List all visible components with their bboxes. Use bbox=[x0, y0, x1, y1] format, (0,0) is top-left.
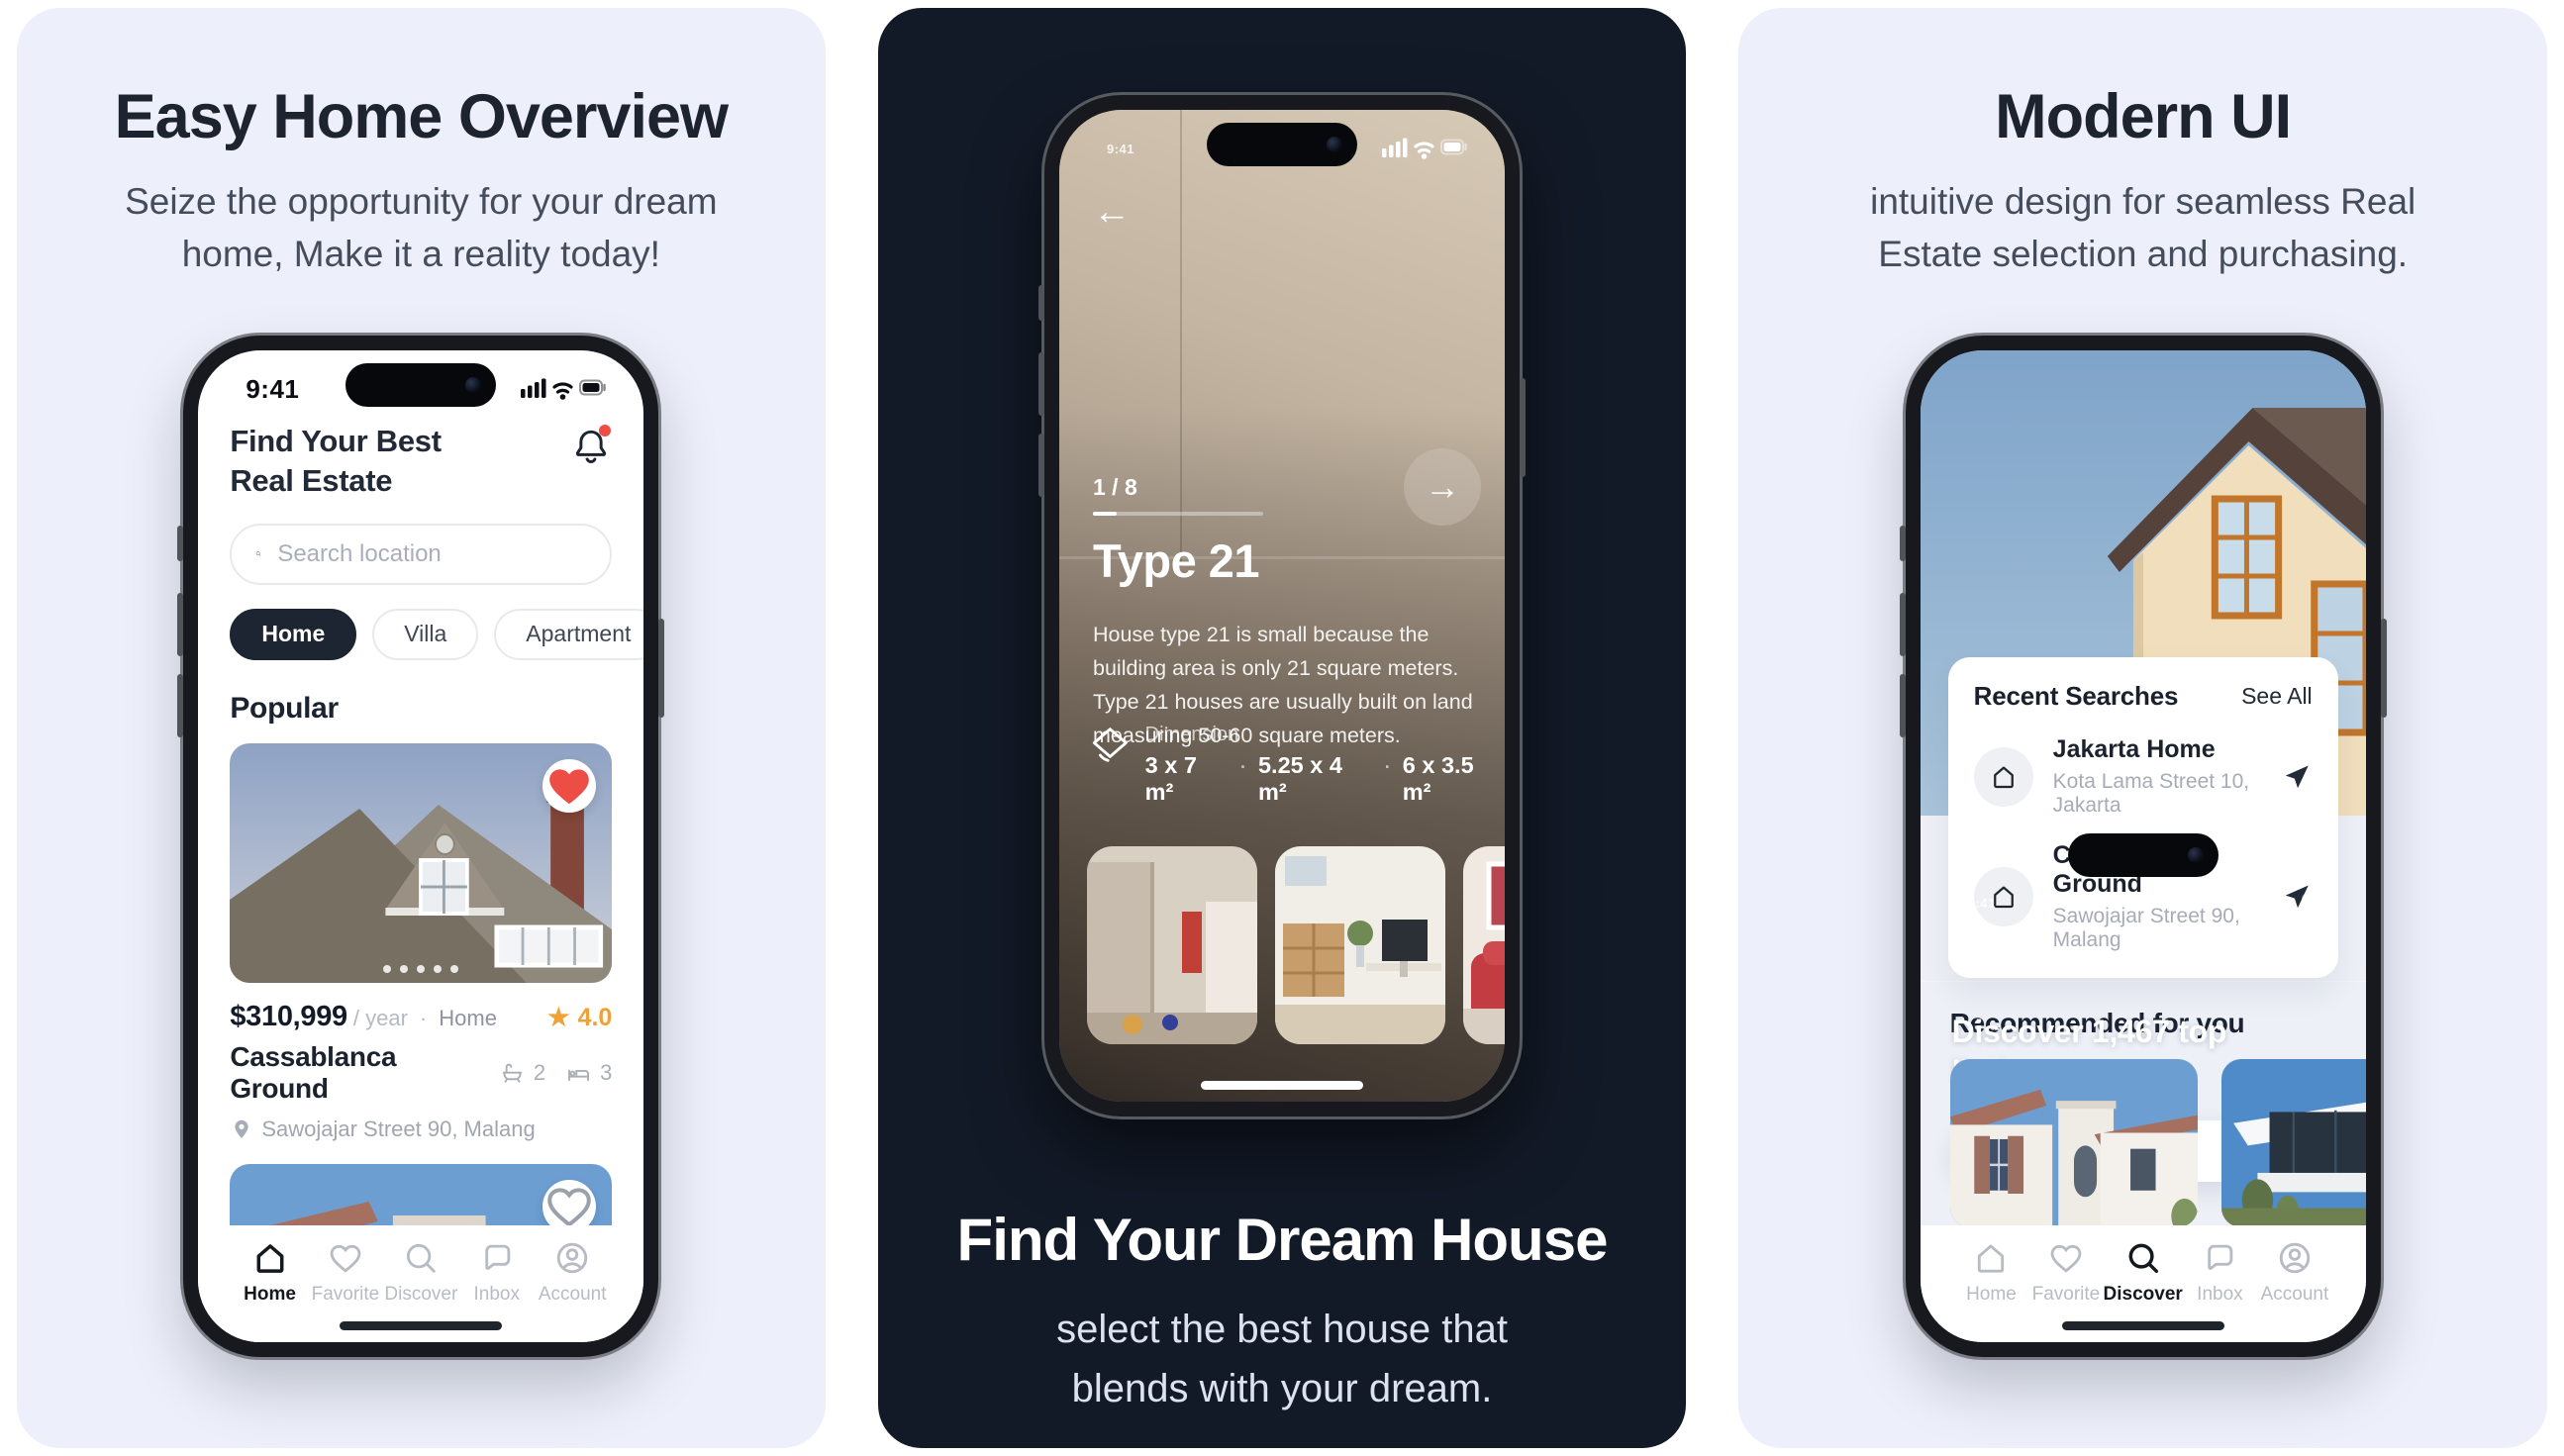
notifications-button[interactable] bbox=[570, 426, 612, 467]
status-time: 9:41 bbox=[246, 374, 299, 405]
home-screen: 9:41 F bbox=[198, 350, 643, 1342]
volume-down-button bbox=[177, 674, 183, 737]
panel-right-heading: Modern UI intuitive design for seamless … bbox=[1738, 81, 2547, 280]
volume-up-button bbox=[1900, 593, 1906, 656]
dimension-values: 3 x 7 m² · 5.25 x 4 m² · 6 x 3.5 m² bbox=[1145, 752, 1505, 806]
listing-name-row: Cassablanca Ground 2 bbox=[230, 1041, 612, 1105]
page-subtitle: intuitive design for seamless Real Estat… bbox=[1738, 176, 2547, 280]
location-pin-icon bbox=[230, 1117, 253, 1141]
home-indicator[interactable] bbox=[340, 1321, 502, 1330]
chip-apartment[interactable]: Apartment bbox=[494, 609, 643, 660]
section-title-popular: Popular bbox=[230, 692, 612, 726]
status-icons bbox=[2243, 890, 2330, 916]
tab-account[interactable]: Account bbox=[2257, 1239, 2332, 1342]
listing-price-row: $310,999 / year · Home ★ 4.0 bbox=[230, 1001, 612, 1033]
dynamic-island bbox=[2068, 833, 2219, 877]
bathtub-icon bbox=[499, 1059, 526, 1086]
heart-icon bbox=[2047, 1239, 2085, 1277]
home-avatar bbox=[1974, 747, 2033, 807]
tab-account[interactable]: Account bbox=[535, 1239, 610, 1342]
panel-middle-heading: Find Your Dream House select the best ho… bbox=[878, 1206, 1687, 1418]
search-icon bbox=[255, 540, 261, 567]
app-store-screens: Easy Home Overview Seize the opportunity… bbox=[0, 0, 2564, 1456]
phone-mockup-home: 9:41 F bbox=[183, 336, 658, 1357]
page-subtitle: Seize the opportunity for your dream hom… bbox=[17, 176, 826, 280]
mute-switch bbox=[1038, 285, 1044, 321]
power-button bbox=[658, 619, 664, 718]
listing-address: Sawojajar Street 90, Malang bbox=[261, 1116, 535, 1142]
home-title: Find Your Best Real Estate bbox=[230, 422, 441, 502]
status-time: 9:41 bbox=[1968, 896, 1996, 911]
back-button[interactable]: ← bbox=[1093, 193, 1131, 231]
listing-photo-modern-house bbox=[2221, 1059, 2366, 1227]
house-icon bbox=[1989, 762, 2019, 792]
volume-up-button bbox=[1038, 352, 1044, 416]
bed-icon bbox=[565, 1059, 592, 1086]
star-icon: ★ bbox=[547, 1003, 569, 1032]
thumbnail-office[interactable] bbox=[1275, 846, 1445, 1044]
panel-modern-ui: Modern UI intuitive design for seamless … bbox=[1738, 8, 2547, 1448]
thumbnail-living-room[interactable] bbox=[1463, 846, 1505, 1044]
heart-filled-icon bbox=[542, 759, 596, 813]
search-input[interactable] bbox=[275, 539, 586, 569]
volume-down-button bbox=[1900, 674, 1906, 737]
volume-up-button bbox=[177, 593, 183, 656]
volume-down-button bbox=[1038, 434, 1044, 497]
thumbnail-kitchen[interactable] bbox=[1087, 846, 1257, 1044]
chip-home[interactable]: Home bbox=[230, 609, 356, 660]
page-title: Find Your Dream House bbox=[878, 1206, 1687, 1274]
home-indicator[interactable] bbox=[1201, 1081, 1363, 1090]
bath-count: 2 bbox=[499, 1059, 545, 1086]
recent-searches-header: Recent Searches See All bbox=[1974, 681, 2313, 712]
panel-easy-home-overview: Easy Home Overview Seize the opportunity… bbox=[17, 8, 826, 1448]
home-indicator[interactable] bbox=[2062, 1321, 2224, 1330]
dimension-row: Dimension 3 x 7 m² · 5.25 x 4 m² · 6 x 3… bbox=[1089, 724, 1505, 806]
photo-counter: 1 / 8 bbox=[1093, 474, 1137, 501]
navigate-icon[interactable] bbox=[2281, 761, 2313, 793]
search-icon bbox=[402, 1239, 440, 1277]
header-divider bbox=[1921, 981, 2366, 982]
panel-left-heading: Easy Home Overview Seize the opportunity… bbox=[17, 81, 826, 280]
panel-find-dream-house: 9:41 ← 1 / 8 bbox=[878, 8, 1687, 1448]
page-title: Easy Home Overview bbox=[17, 81, 826, 152]
recent-searches-card: Recent Searches See All Jakarta Home Kot… bbox=[1948, 657, 2338, 978]
recent-search-item[interactable]: Jakarta Home Kota Lama Street 10, Jakart… bbox=[1974, 735, 2313, 818]
phone-mockup-detail: 9:41 ← 1 / 8 bbox=[1044, 95, 1520, 1116]
mute-switch bbox=[1900, 526, 1906, 561]
listing-address-row: Sawojajar Street 90, Malang bbox=[230, 1116, 612, 1142]
chip-villa[interactable]: Villa bbox=[372, 609, 478, 660]
status-icons bbox=[521, 376, 608, 402]
listing-name: Cassablanca Ground bbox=[230, 1041, 499, 1105]
chat-bubble-icon bbox=[2201, 1239, 2238, 1277]
dimension-label: Dimension bbox=[1145, 724, 1505, 746]
phone-mockup-discover: 9:41 bbox=[1906, 336, 2381, 1357]
dimension-texts: Dimension 3 x 7 m² · 5.25 x 4 m² · 6 x 3… bbox=[1145, 724, 1505, 806]
page-subtitle: select the best house that blends with y… bbox=[878, 1300, 1687, 1418]
photo-carousel-dots bbox=[383, 965, 458, 973]
category-filter-chips: Home Villa Apartment bbox=[230, 609, 612, 660]
photo-progress-bar bbox=[1093, 512, 1263, 516]
home-icon bbox=[1972, 1239, 2010, 1277]
listing-photo-stucco-house bbox=[1950, 1059, 2198, 1227]
listing-card[interactable]: $310,999 / year · Home ★ 4.0 Cassablanca… bbox=[230, 743, 612, 1142]
photo-thumbnails bbox=[1087, 846, 1505, 1044]
dynamic-island bbox=[1207, 123, 1357, 166]
listing-rating: ★ 4.0 bbox=[547, 1003, 612, 1032]
tab-home[interactable]: Home bbox=[232, 1239, 307, 1342]
home-header: Find Your Best Real Estate bbox=[198, 402, 643, 502]
house-type-title: Type 21 bbox=[1093, 534, 1259, 588]
discover-screen: 9:41 bbox=[1921, 350, 2366, 1342]
recent-searches-title: Recent Searches bbox=[1974, 681, 2179, 712]
search-bar[interactable] bbox=[230, 524, 612, 585]
listing-price: $310,999 bbox=[230, 1001, 347, 1033]
search-icon bbox=[2124, 1239, 2162, 1277]
tab-home[interactable]: Home bbox=[1954, 1239, 2029, 1342]
home-icon bbox=[251, 1239, 289, 1277]
next-photo-button[interactable]: → bbox=[1404, 448, 1481, 526]
recent-search-texts: Jakarta Home Kota Lama Street 10, Jakart… bbox=[2053, 735, 2261, 818]
person-circle-icon bbox=[553, 1239, 591, 1277]
listing-amenities: 2 3 bbox=[499, 1059, 613, 1086]
chat-bubble-icon bbox=[478, 1239, 516, 1277]
page-title: Modern UI bbox=[1738, 81, 2547, 152]
favorite-button[interactable] bbox=[542, 759, 596, 813]
listing-category: Home bbox=[439, 1006, 497, 1031]
bed-count: 3 bbox=[565, 1059, 612, 1086]
mute-switch bbox=[177, 526, 183, 561]
heart-icon bbox=[327, 1239, 364, 1277]
status-icons bbox=[1382, 136, 1469, 161]
dynamic-island bbox=[345, 363, 496, 407]
listing-photo-shingle-house bbox=[230, 743, 612, 983]
person-circle-icon bbox=[2276, 1239, 2314, 1277]
dimension-icon bbox=[1089, 724, 1132, 767]
power-button bbox=[2381, 619, 2387, 718]
house-detail-screen: 9:41 ← 1 / 8 bbox=[1059, 110, 1505, 1102]
power-button bbox=[1520, 378, 1526, 477]
photo-progress-fill bbox=[1093, 512, 1117, 516]
see-all-link[interactable]: See All bbox=[2241, 683, 2313, 710]
status-time: 9:41 bbox=[1107, 142, 1134, 156]
